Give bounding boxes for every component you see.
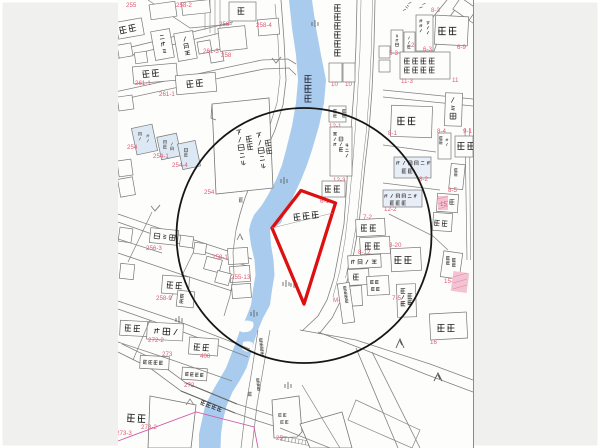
svg-text:273-3: 273-3 [116, 430, 132, 437]
svg-text:8-1: 8-1 [388, 130, 398, 137]
svg-text:258-9: 258-9 [156, 295, 172, 302]
svg-text:11-3: 11-3 [401, 78, 413, 85]
svg-text:400: 400 [200, 353, 211, 360]
svg-text:10: 10 [331, 81, 338, 88]
svg-text:255: 255 [126, 2, 137, 9]
svg-text:261-1: 261-1 [135, 80, 151, 87]
svg-text:10: 10 [345, 81, 352, 88]
svg-text:258: 258 [221, 52, 232, 59]
svg-text:15: 15 [440, 201, 447, 208]
svg-text:254-4: 254-4 [172, 162, 188, 169]
svg-text:9-1: 9-1 [463, 128, 473, 135]
svg-text:258-4: 258-4 [256, 22, 272, 29]
svg-text:6-9: 6-9 [457, 44, 467, 51]
svg-text:12-2: 12-2 [384, 206, 397, 213]
svg-text:258: 258 [219, 21, 230, 28]
svg-text:8-3: 8-3 [431, 7, 441, 14]
svg-text:7-2: 7-2 [363, 214, 373, 221]
svg-text:261-1: 261-1 [159, 91, 175, 98]
svg-text:254-1: 254-1 [153, 153, 169, 160]
svg-text:8-5: 8-5 [448, 187, 458, 194]
svg-text:254: 254 [127, 144, 138, 151]
svg-text:7-5: 7-5 [392, 295, 402, 302]
svg-text:254: 254 [204, 189, 215, 196]
svg-text:8-20: 8-20 [389, 242, 402, 249]
svg-text:11: 11 [452, 77, 459, 84]
svg-text:16: 16 [430, 339, 437, 346]
svg-text:5-3: 5-3 [389, 50, 399, 57]
svg-text:258-2: 258-2 [176, 2, 192, 9]
svg-text:272-2: 272-2 [148, 337, 164, 344]
svg-text:261-3: 261-3 [203, 48, 219, 55]
